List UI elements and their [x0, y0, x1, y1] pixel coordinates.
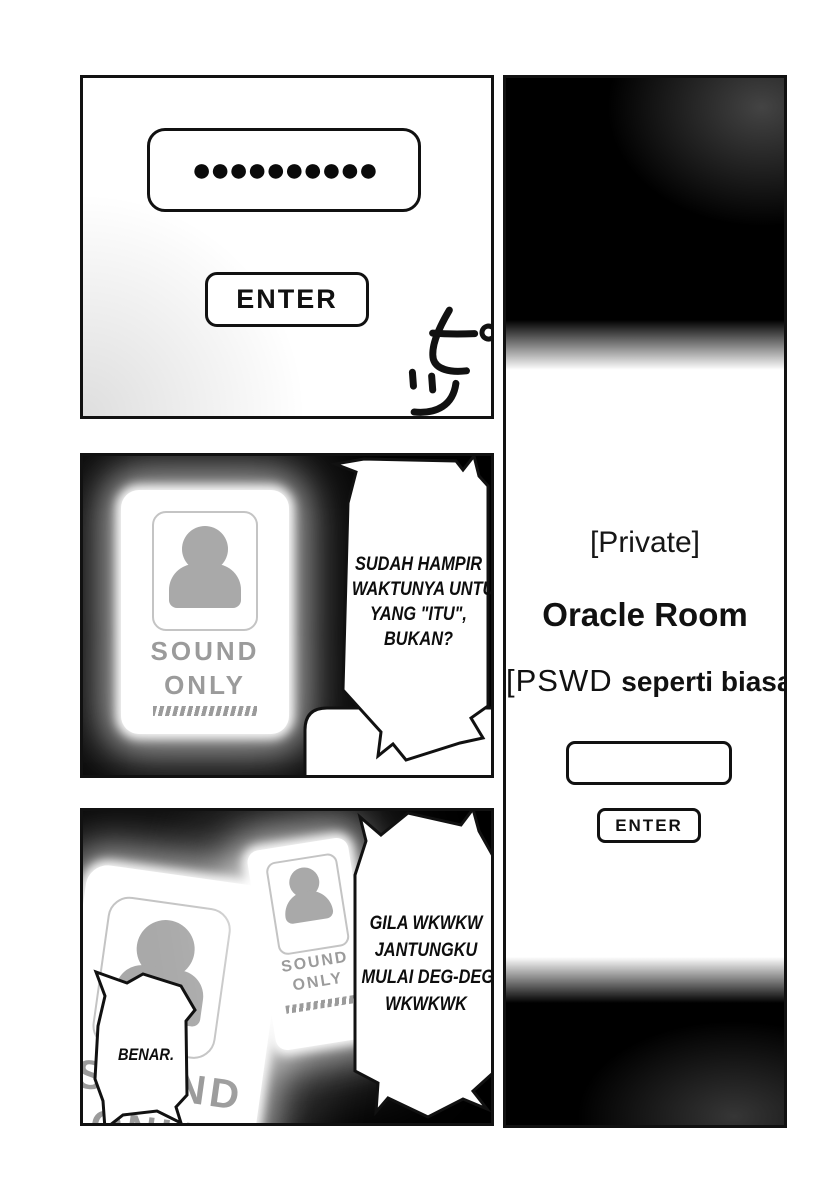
- speech-line: JANTUNGKU: [362, 937, 491, 964]
- sound-only-label-line1: SOUND: [121, 638, 289, 664]
- room-title: Oracle Room: [506, 596, 784, 634]
- user-silhouette-body-icon: [169, 564, 241, 608]
- speech-line: GILA WKWKW: [362, 910, 491, 937]
- avatar-frame: [152, 511, 258, 631]
- bottom-shadow-gradient: [506, 957, 784, 1125]
- signal-stripes-bar: [285, 995, 357, 1014]
- avatar-frame: [90, 894, 234, 1062]
- oracle-room-panel: [Private] Oracle Room [PSWD seperti bias…: [503, 75, 787, 1128]
- enter-button[interactable]: ENTER: [205, 272, 369, 327]
- password-masked-value: ●●●●●●●●●●: [191, 153, 376, 187]
- speech-text: GILA WKWKW JANTUNGKU MULAI DEG-DEGAN WKW…: [362, 910, 491, 1018]
- speech-text: SUDAH HAMPIR WAKTUNYA UNTUK YANG "ITU", …: [352, 552, 485, 652]
- speech-line: SUDAH HAMPIR: [352, 552, 485, 577]
- sound-only-card: SOUND ONLY: [121, 490, 289, 734]
- sound-only-label-line2: ONLY: [121, 672, 289, 698]
- private-label: [Private]: [506, 526, 784, 560]
- speech-line: YANG "ITU",: [352, 602, 485, 627]
- speech-line: WKWKWK: [362, 991, 491, 1018]
- password-hint-text: seperti biasa: [621, 666, 787, 697]
- avatar-frame: [265, 852, 351, 956]
- manga-page: ●●●●●●●●●● ENTER [Private] Oracle Room […: [0, 0, 836, 1200]
- user-silhouette-body-icon: [282, 888, 334, 925]
- reaction-panel: SOUND ONLY SOUND ONLY GILA WKWKW JANTUNG…: [80, 808, 494, 1126]
- top-shadow-gradient: [506, 78, 784, 370]
- chat-panel: SOUND ONLY SUDAH HAMPIR WAKTUNYA UNTUK Y…: [80, 453, 494, 778]
- password-hint-prefix: [PSWD: [506, 663, 613, 698]
- password-hint: [PSWD seperti biasa ]: [506, 663, 784, 699]
- sfx-beep-icon: [382, 295, 494, 419]
- login-panel: ●●●●●●●●●● ENTER: [80, 75, 494, 419]
- speech-line: MULAI DEG-DEGAN: [362, 964, 491, 991]
- user-silhouette-body-icon: [112, 962, 207, 1028]
- password-field[interactable]: ●●●●●●●●●●: [147, 128, 421, 212]
- signal-stripes-bar: [153, 706, 257, 716]
- speech-line: WAKTUNYA UNTUK: [352, 577, 485, 602]
- speech-bubble-partial: [305, 690, 494, 778]
- enter-button[interactable]: ENTER: [597, 808, 701, 843]
- password-input[interactable]: [566, 741, 732, 785]
- reply-speech-text: BENAR.: [111, 1045, 182, 1065]
- speech-line: BUKAN?: [352, 627, 485, 652]
